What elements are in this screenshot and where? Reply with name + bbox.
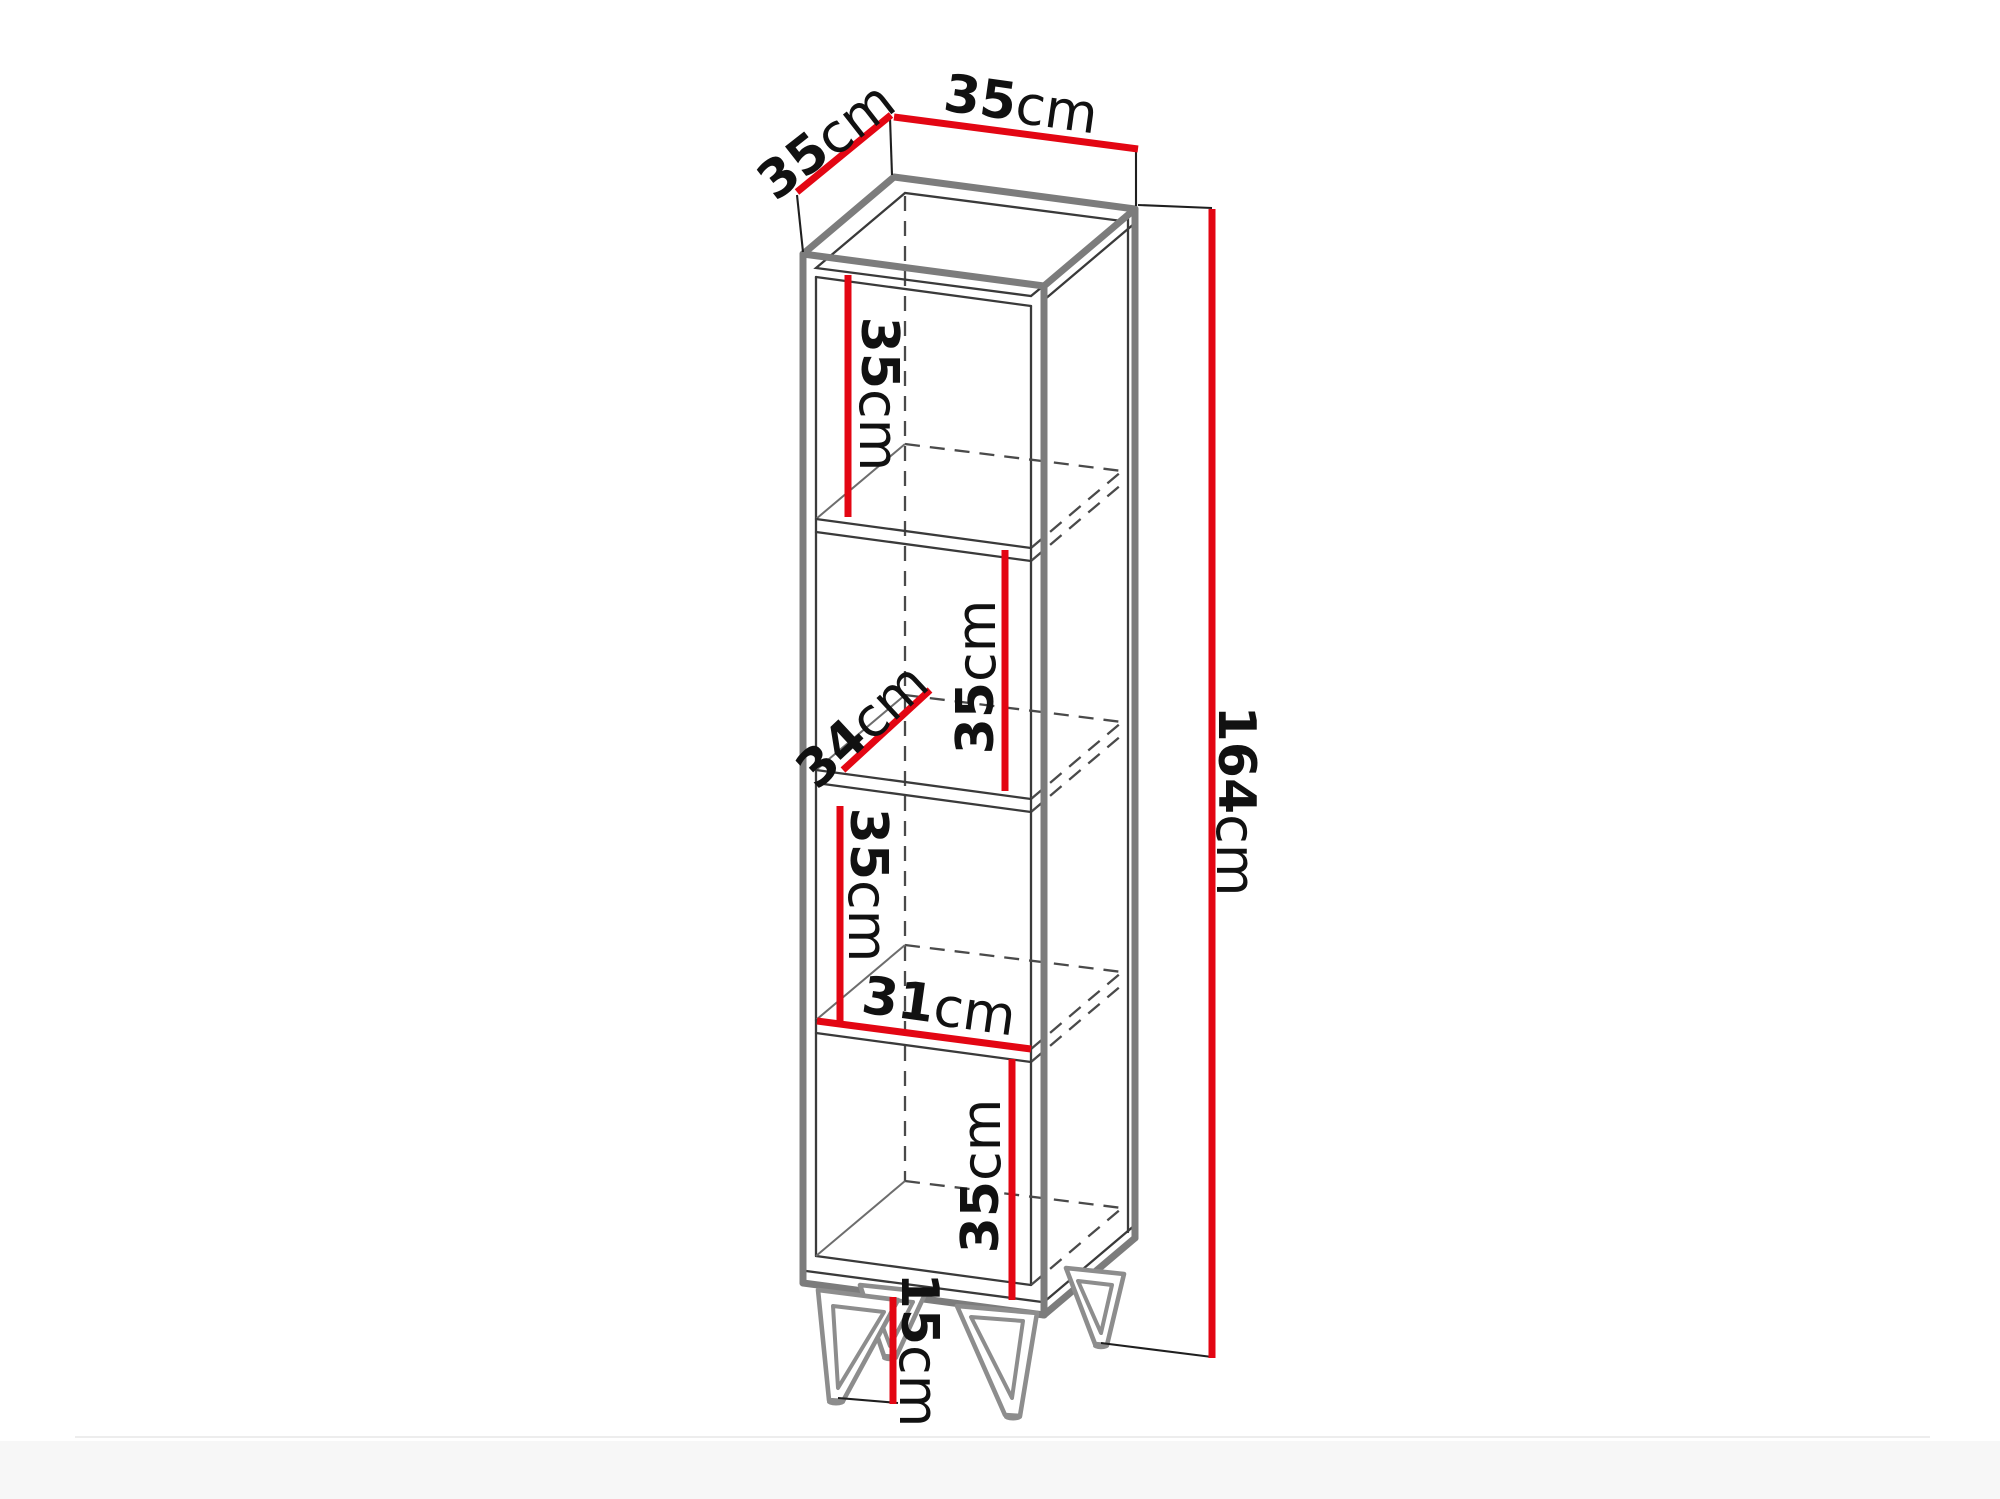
dimension-label-compartment-3: 35cm — [837, 808, 900, 963]
dimension-label-compartment-2: 35cm — [945, 600, 1008, 755]
dimension-label-leg-height: 15cm — [888, 1273, 951, 1428]
diagram-canvas: 35cm 35cm 35cm 35cm 34cm 35cm 31cm 35cm … — [0, 0, 2000, 1499]
dimension-label-compartment-4: 35cm — [950, 1099, 1013, 1254]
dimension-label-total-height: 164cm — [1205, 706, 1268, 897]
dimension-label-compartment-1: 35cm — [848, 317, 911, 472]
furniture-dimension-diagram: 35cm 35cm 35cm 35cm 34cm 35cm 31cm 35cm … — [0, 0, 2000, 1499]
page-bottom-strip — [0, 1441, 2000, 1499]
